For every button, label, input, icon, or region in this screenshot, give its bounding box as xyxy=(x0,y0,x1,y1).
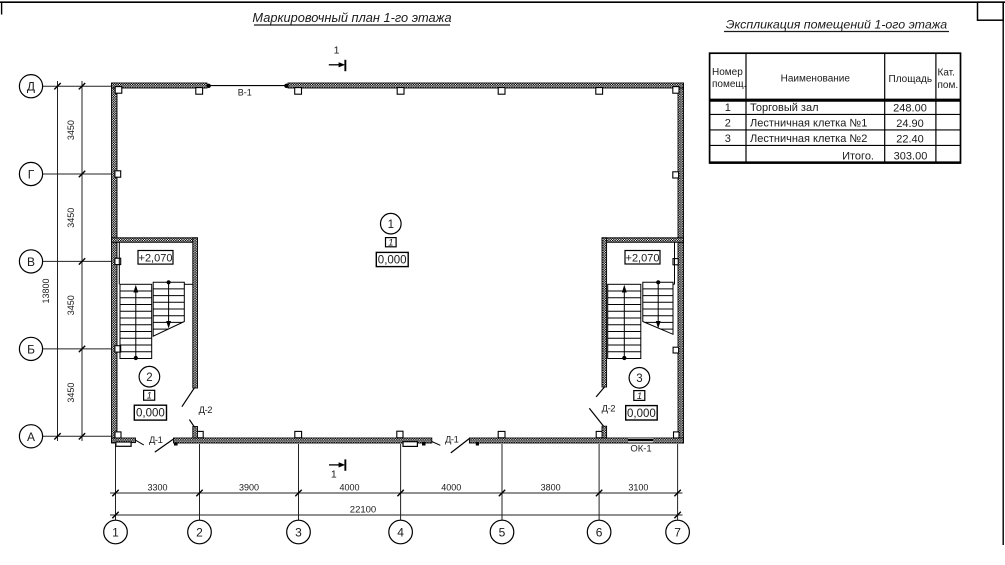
svg-text:3450: 3450 xyxy=(66,295,76,315)
svg-text:0,000: 0,000 xyxy=(378,255,407,267)
svg-text:3450: 3450 xyxy=(66,383,76,403)
svg-text:2: 2 xyxy=(146,372,152,384)
svg-text:В: В xyxy=(27,255,35,269)
svg-text:6: 6 xyxy=(596,526,603,540)
svg-text:Д-1: Д-1 xyxy=(445,433,459,444)
svg-text:22100: 22100 xyxy=(350,505,376,516)
svg-text:1: 1 xyxy=(147,391,152,401)
svg-text:Б: Б xyxy=(27,342,35,356)
svg-text:пом.: пом. xyxy=(938,80,959,91)
svg-text:+2,070: +2,070 xyxy=(139,252,173,264)
svg-text:3900: 3900 xyxy=(239,482,259,492)
svg-text:3: 3 xyxy=(725,133,731,145)
svg-text:5: 5 xyxy=(499,526,506,540)
svg-text:2: 2 xyxy=(196,526,203,540)
svg-text:3300: 3300 xyxy=(147,482,167,492)
svg-text:+2,070: +2,070 xyxy=(626,252,660,264)
svg-text:Наименование: Наименование xyxy=(781,74,851,85)
svg-text:0,000: 0,000 xyxy=(627,408,656,420)
svg-text:303.00: 303.00 xyxy=(894,151,928,163)
svg-text:1: 1 xyxy=(388,219,394,231)
svg-text:248.00: 248.00 xyxy=(893,102,927,114)
svg-text:3450: 3450 xyxy=(66,208,76,228)
svg-text:Кат.: Кат. xyxy=(938,68,955,79)
svg-text:7: 7 xyxy=(674,526,681,540)
svg-text:22.40: 22.40 xyxy=(896,133,924,145)
svg-text:Д-1: Д-1 xyxy=(149,434,163,445)
svg-text:Экспликация помещений 1-ого эт: Экспликация помещений 1-ого этажа xyxy=(726,18,947,32)
svg-text:13800: 13800 xyxy=(41,278,51,303)
svg-text:4000: 4000 xyxy=(441,482,461,492)
svg-text:Д: Д xyxy=(27,80,35,94)
svg-text:3800: 3800 xyxy=(541,482,561,492)
svg-text:Итого.: Итого. xyxy=(842,151,874,163)
svg-text:Торговый зал: Торговый зал xyxy=(750,102,819,114)
svg-text:1: 1 xyxy=(637,391,642,401)
svg-text:А: А xyxy=(27,430,35,444)
svg-text:Маркировочный план 1-го этажа: Маркировочный план 1-го этажа xyxy=(252,10,451,25)
svg-text:2: 2 xyxy=(725,117,731,129)
svg-text:Д-2: Д-2 xyxy=(199,404,213,415)
svg-text:1: 1 xyxy=(334,45,340,57)
svg-text:помещ.: помещ. xyxy=(712,79,746,90)
svg-text:4: 4 xyxy=(397,526,404,540)
svg-text:3: 3 xyxy=(295,526,302,540)
svg-text:Номер: Номер xyxy=(712,67,743,78)
svg-text:3450: 3450 xyxy=(66,120,76,140)
svg-text:1: 1 xyxy=(112,526,119,540)
svg-text:3100: 3100 xyxy=(628,482,648,492)
svg-text:Лестничная клетка №2: Лестничная клетка №2 xyxy=(750,133,867,145)
svg-text:Площадь: Площадь xyxy=(889,74,933,85)
svg-text:1: 1 xyxy=(725,102,731,114)
svg-text:Лестничная клетка №1: Лестничная клетка №1 xyxy=(750,117,867,129)
svg-text:ОК-1: ОК-1 xyxy=(630,444,651,455)
svg-text:0,000: 0,000 xyxy=(136,408,165,420)
svg-text:1: 1 xyxy=(331,469,337,481)
svg-text:3: 3 xyxy=(636,373,642,385)
svg-text:В-1: В-1 xyxy=(238,88,252,98)
svg-text:4000: 4000 xyxy=(339,482,359,492)
svg-text:1: 1 xyxy=(388,237,393,247)
svg-text:24.90: 24.90 xyxy=(896,118,924,130)
svg-text:Г: Г xyxy=(28,168,35,182)
svg-text:Д-2: Д-2 xyxy=(602,403,616,414)
